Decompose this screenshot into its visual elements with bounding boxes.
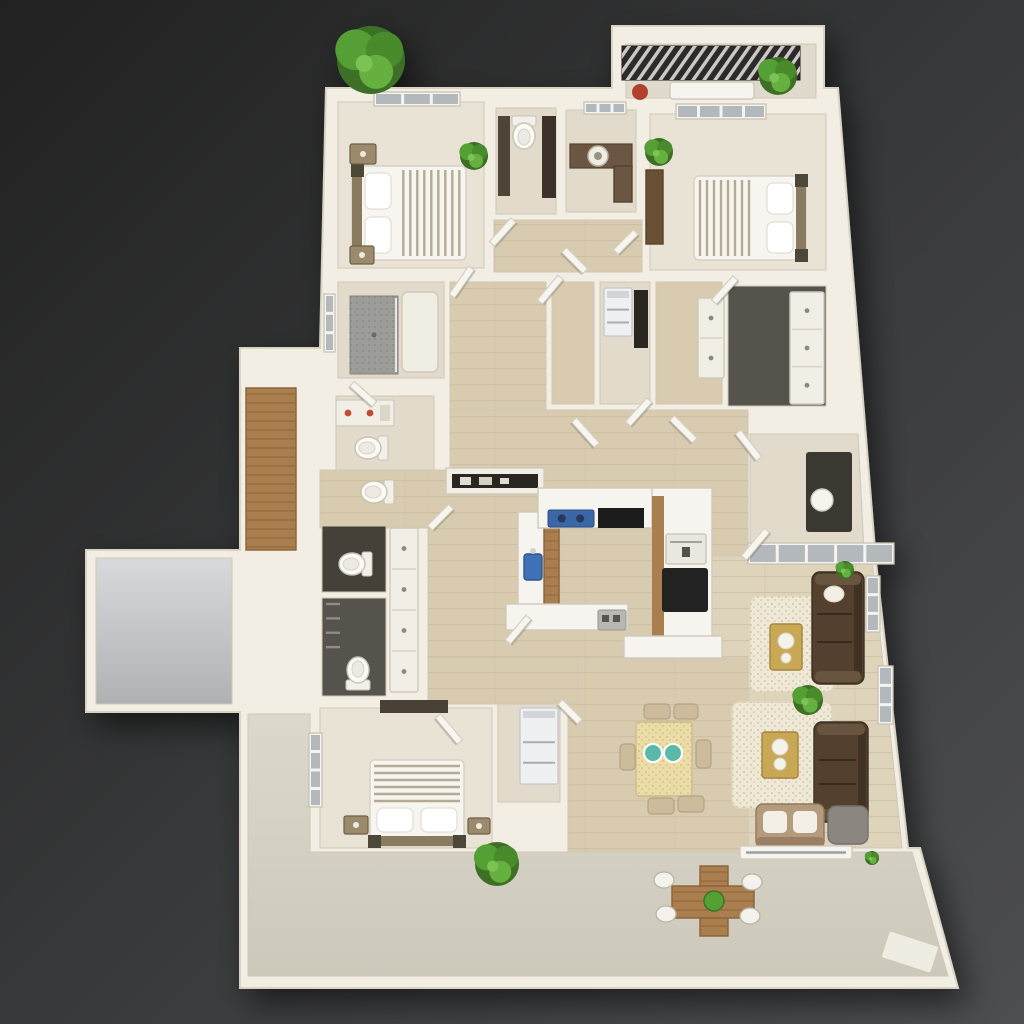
toilet-bath-s2 (346, 657, 370, 690)
cabinet-bath-a-left (498, 116, 510, 196)
bay-window-living (748, 543, 894, 564)
balcony-red-plant (632, 84, 648, 100)
washer-m2 (604, 288, 632, 336)
dining-chair-3 (648, 798, 674, 814)
vanity-bath-b (570, 144, 632, 168)
armchair (828, 806, 868, 844)
toilet-bath-a (512, 116, 536, 149)
washer-laundry-bl (520, 708, 558, 784)
kitchen-appliance (598, 610, 626, 630)
patio-chair-3 (656, 906, 676, 922)
dining-table (636, 722, 692, 796)
coffee-table-2 (762, 732, 798, 778)
loveseat (756, 804, 824, 848)
entry-ramp (246, 388, 296, 550)
dresser-bedroom-tr (646, 170, 663, 244)
wardrobe-walkin (790, 292, 824, 404)
dining-chair-6 (696, 740, 711, 768)
nightstand-2 (350, 246, 374, 264)
cabinet-bath-a-right (542, 116, 556, 198)
patio-chair-1 (654, 872, 674, 888)
floor-plan-render (0, 0, 1024, 1024)
floor-plan-canvas (0, 0, 1024, 1024)
office-stool (811, 489, 833, 511)
toilet-bath-l3-2 (361, 480, 394, 504)
window-bath-b (584, 102, 626, 114)
patio-chair-4 (740, 908, 760, 924)
nightstand-3 (344, 816, 368, 834)
bed-third (368, 760, 466, 848)
window-bath-l2 (324, 294, 335, 352)
kitchen-island-wood (544, 526, 559, 614)
closet-column (390, 528, 418, 692)
window-bedroom-tr (676, 104, 766, 119)
patio-sliding-door (740, 846, 852, 859)
vanity-bath-l3 (336, 400, 394, 426)
cabinet-m3 (698, 298, 724, 378)
hall-3-floor-planks (450, 410, 748, 472)
garage-floor (96, 558, 232, 704)
window-living-1 (866, 576, 880, 632)
dining-chair-2 (674, 704, 698, 719)
kitchen-stove (598, 508, 644, 528)
console-bedroom-bl (380, 700, 448, 713)
toilet-bath-l3-1 (355, 436, 388, 460)
kitchen-pass-counter (452, 474, 538, 488)
tub-bath-l2 (402, 292, 438, 372)
vanity-bath-b-side (614, 166, 632, 202)
kitchen-counter-bottom (624, 636, 722, 658)
toilet-bath-s1 (339, 552, 372, 576)
window-bedroom-tl (374, 92, 460, 106)
patio-centerpiece (704, 891, 724, 911)
nightstand-4 (468, 818, 490, 834)
patio-chair-2 (742, 874, 762, 890)
kitchen-dishwasher (666, 534, 706, 564)
nightstand-1 (350, 144, 376, 164)
window-living-2 (878, 666, 893, 724)
kitchen-cooktop (548, 510, 594, 527)
window-bedroom-bl (309, 733, 322, 807)
balcony-bench (670, 82, 754, 99)
sofa-1 (812, 572, 864, 684)
coffee-table-1 (770, 624, 802, 670)
hall-4-floor-planks (428, 658, 578, 704)
closet-m1-floor (552, 282, 594, 404)
dining-chair-5 (620, 744, 635, 770)
bed-guest (694, 174, 808, 262)
kitchen-fridge (662, 568, 708, 612)
shelf-m2 (634, 290, 648, 348)
shower-bath-l2 (350, 296, 398, 374)
dining-chair-4 (678, 796, 704, 812)
dining-chair-1 (644, 704, 670, 719)
